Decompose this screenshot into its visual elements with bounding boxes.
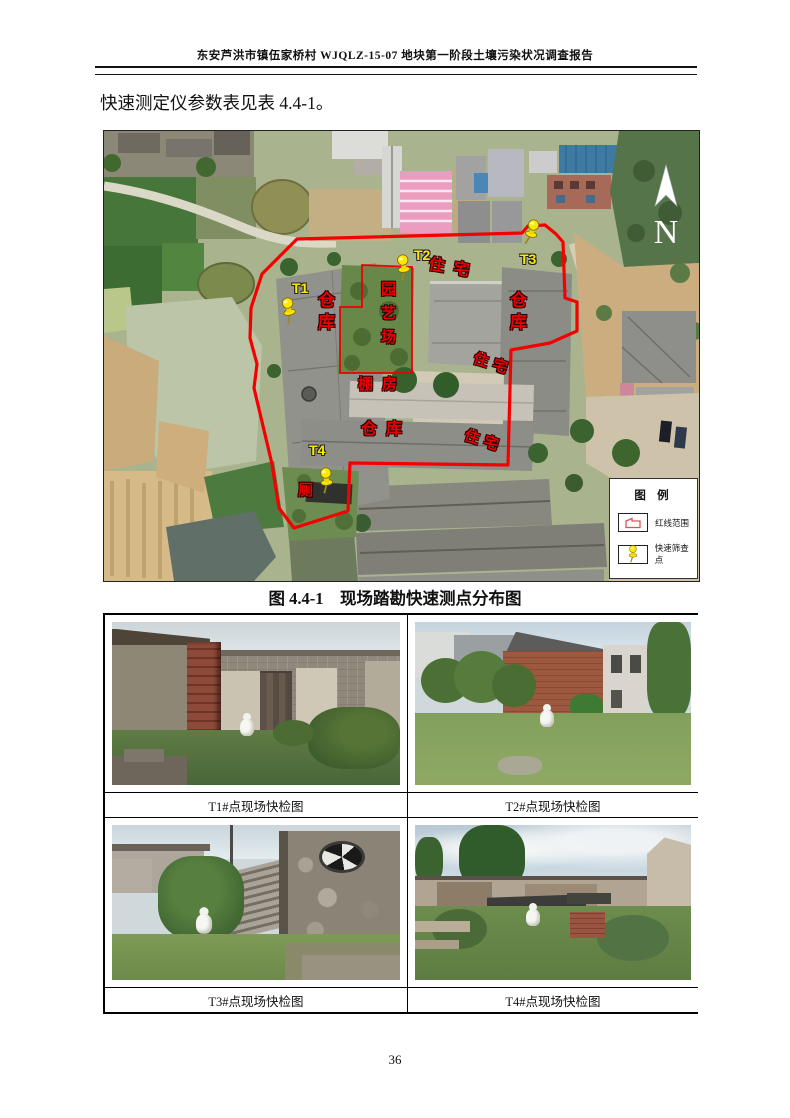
report-header: 东安芦洪市镇伍家桥村 WJQLZ-15-07 地块第一阶段土壤污染状况调查报告 <box>0 47 790 63</box>
caption-text: T3#点现场快检图 <box>208 991 303 1010</box>
wall-patch <box>437 882 492 907</box>
person-body <box>540 710 554 727</box>
site-map-figure: N T1 T2 T3 T4 仓库 园艺场 住宅 仓库 住宅 棚房 仓库 住宅 厕… <box>103 130 700 582</box>
map-label-t4: T4 <box>309 443 325 457</box>
parked-car <box>674 427 687 449</box>
caption-text: T2#点现场快检图 <box>505 796 600 815</box>
map-label-t3: T3 <box>520 252 536 266</box>
person-body <box>526 909 540 926</box>
shade-cloth <box>567 893 611 904</box>
north-label: N <box>654 214 679 251</box>
map-label-warehouse-right: 仓库 <box>508 291 525 335</box>
map-label-t1: T1 <box>292 281 308 295</box>
bush <box>308 707 400 769</box>
dirt <box>302 955 400 980</box>
legend-row-pin: 快速筛查点 <box>618 542 697 566</box>
surveyor-person <box>525 903 541 928</box>
map-label-shed: 棚房 <box>358 377 406 392</box>
pond <box>252 180 312 234</box>
brick-pile <box>570 912 606 938</box>
map-label-warehouse-left: 仓库 <box>316 291 333 335</box>
photo-cell-t3 <box>105 818 408 988</box>
legend-label-pin: 快速筛查点 <box>655 542 697 566</box>
left-wall <box>112 645 198 736</box>
report-page: 东安芦洪市镇伍家桥村 WJQLZ-15-07 地块第一阶段土壤污染状况调查报告 … <box>0 0 790 1118</box>
left-building-roof <box>112 844 210 852</box>
water-tank <box>302 387 316 401</box>
legend-label-boundary: 红线范围 <box>655 517 689 529</box>
wall-top-edge <box>198 650 400 657</box>
utility-pole <box>230 825 233 865</box>
person-body <box>195 914 211 934</box>
photo-caption-t1: T1#点现场快检图 <box>105 793 408 818</box>
concrete-beam <box>415 921 470 932</box>
map-label-warehouse-bottom: 仓库 <box>361 422 411 438</box>
photo-caption-t3: T3#点现场快检图 <box>105 988 408 1012</box>
blue-roof-building <box>559 145 621 173</box>
map-label-t2: T2 <box>414 248 430 262</box>
window <box>611 655 622 673</box>
page-number: 36 <box>0 1052 790 1068</box>
rubble <box>124 749 164 762</box>
brick-building <box>547 175 611 209</box>
figure-caption: 图 4.4-1 现场踏勘快速测点分布图 <box>0 585 790 609</box>
photo-t4 <box>415 825 691 980</box>
legend-title: 图 例 <box>610 487 697 503</box>
photo-cell-t2 <box>408 615 698 793</box>
map-label-garden: 园艺场 <box>380 281 395 353</box>
window <box>630 655 641 673</box>
surveyor-person <box>194 907 212 936</box>
photo-t1 <box>112 622 400 785</box>
bush <box>597 915 669 962</box>
window <box>611 690 622 708</box>
tree <box>647 622 691 717</box>
concrete-beam <box>415 940 459 949</box>
map-legend: 图 例 红线范围 快速筛查点 <box>609 478 698 579</box>
caption-text: T1#点现场快检图 <box>208 796 303 815</box>
pink-roof-building <box>400 171 452 233</box>
person-body <box>240 719 254 736</box>
exhaust-fan <box>319 841 365 874</box>
photo-caption-t2: T2#点现场快检图 <box>408 793 698 818</box>
photo-t2 <box>415 622 691 785</box>
body-paragraph: 快速测定仪参数表见表 4.4-1。 <box>100 90 333 115</box>
pushpin-icon <box>618 545 648 564</box>
photo-cell-t1 <box>105 615 408 793</box>
surveyor-person <box>539 704 555 729</box>
tree <box>492 664 536 706</box>
photo-t3 <box>112 825 400 980</box>
map-label-toilet: 厕 <box>298 483 313 498</box>
stone-path <box>498 756 542 776</box>
photo-caption-t4: T4#点现场快检图 <box>408 988 698 1012</box>
header-rule <box>95 66 697 75</box>
surveyor-person <box>239 713 255 738</box>
legend-row-boundary: 红线范围 <box>618 513 697 532</box>
red-line-icon <box>618 513 648 532</box>
bush <box>273 720 313 746</box>
far-building <box>112 859 152 893</box>
caption-text: T4#点现场快检图 <box>505 991 600 1010</box>
parked-car <box>659 421 672 443</box>
photo-cell-t4 <box>408 818 698 988</box>
photo-table: T1#点现场快检图 T2#点现场快检图 <box>103 613 698 1014</box>
